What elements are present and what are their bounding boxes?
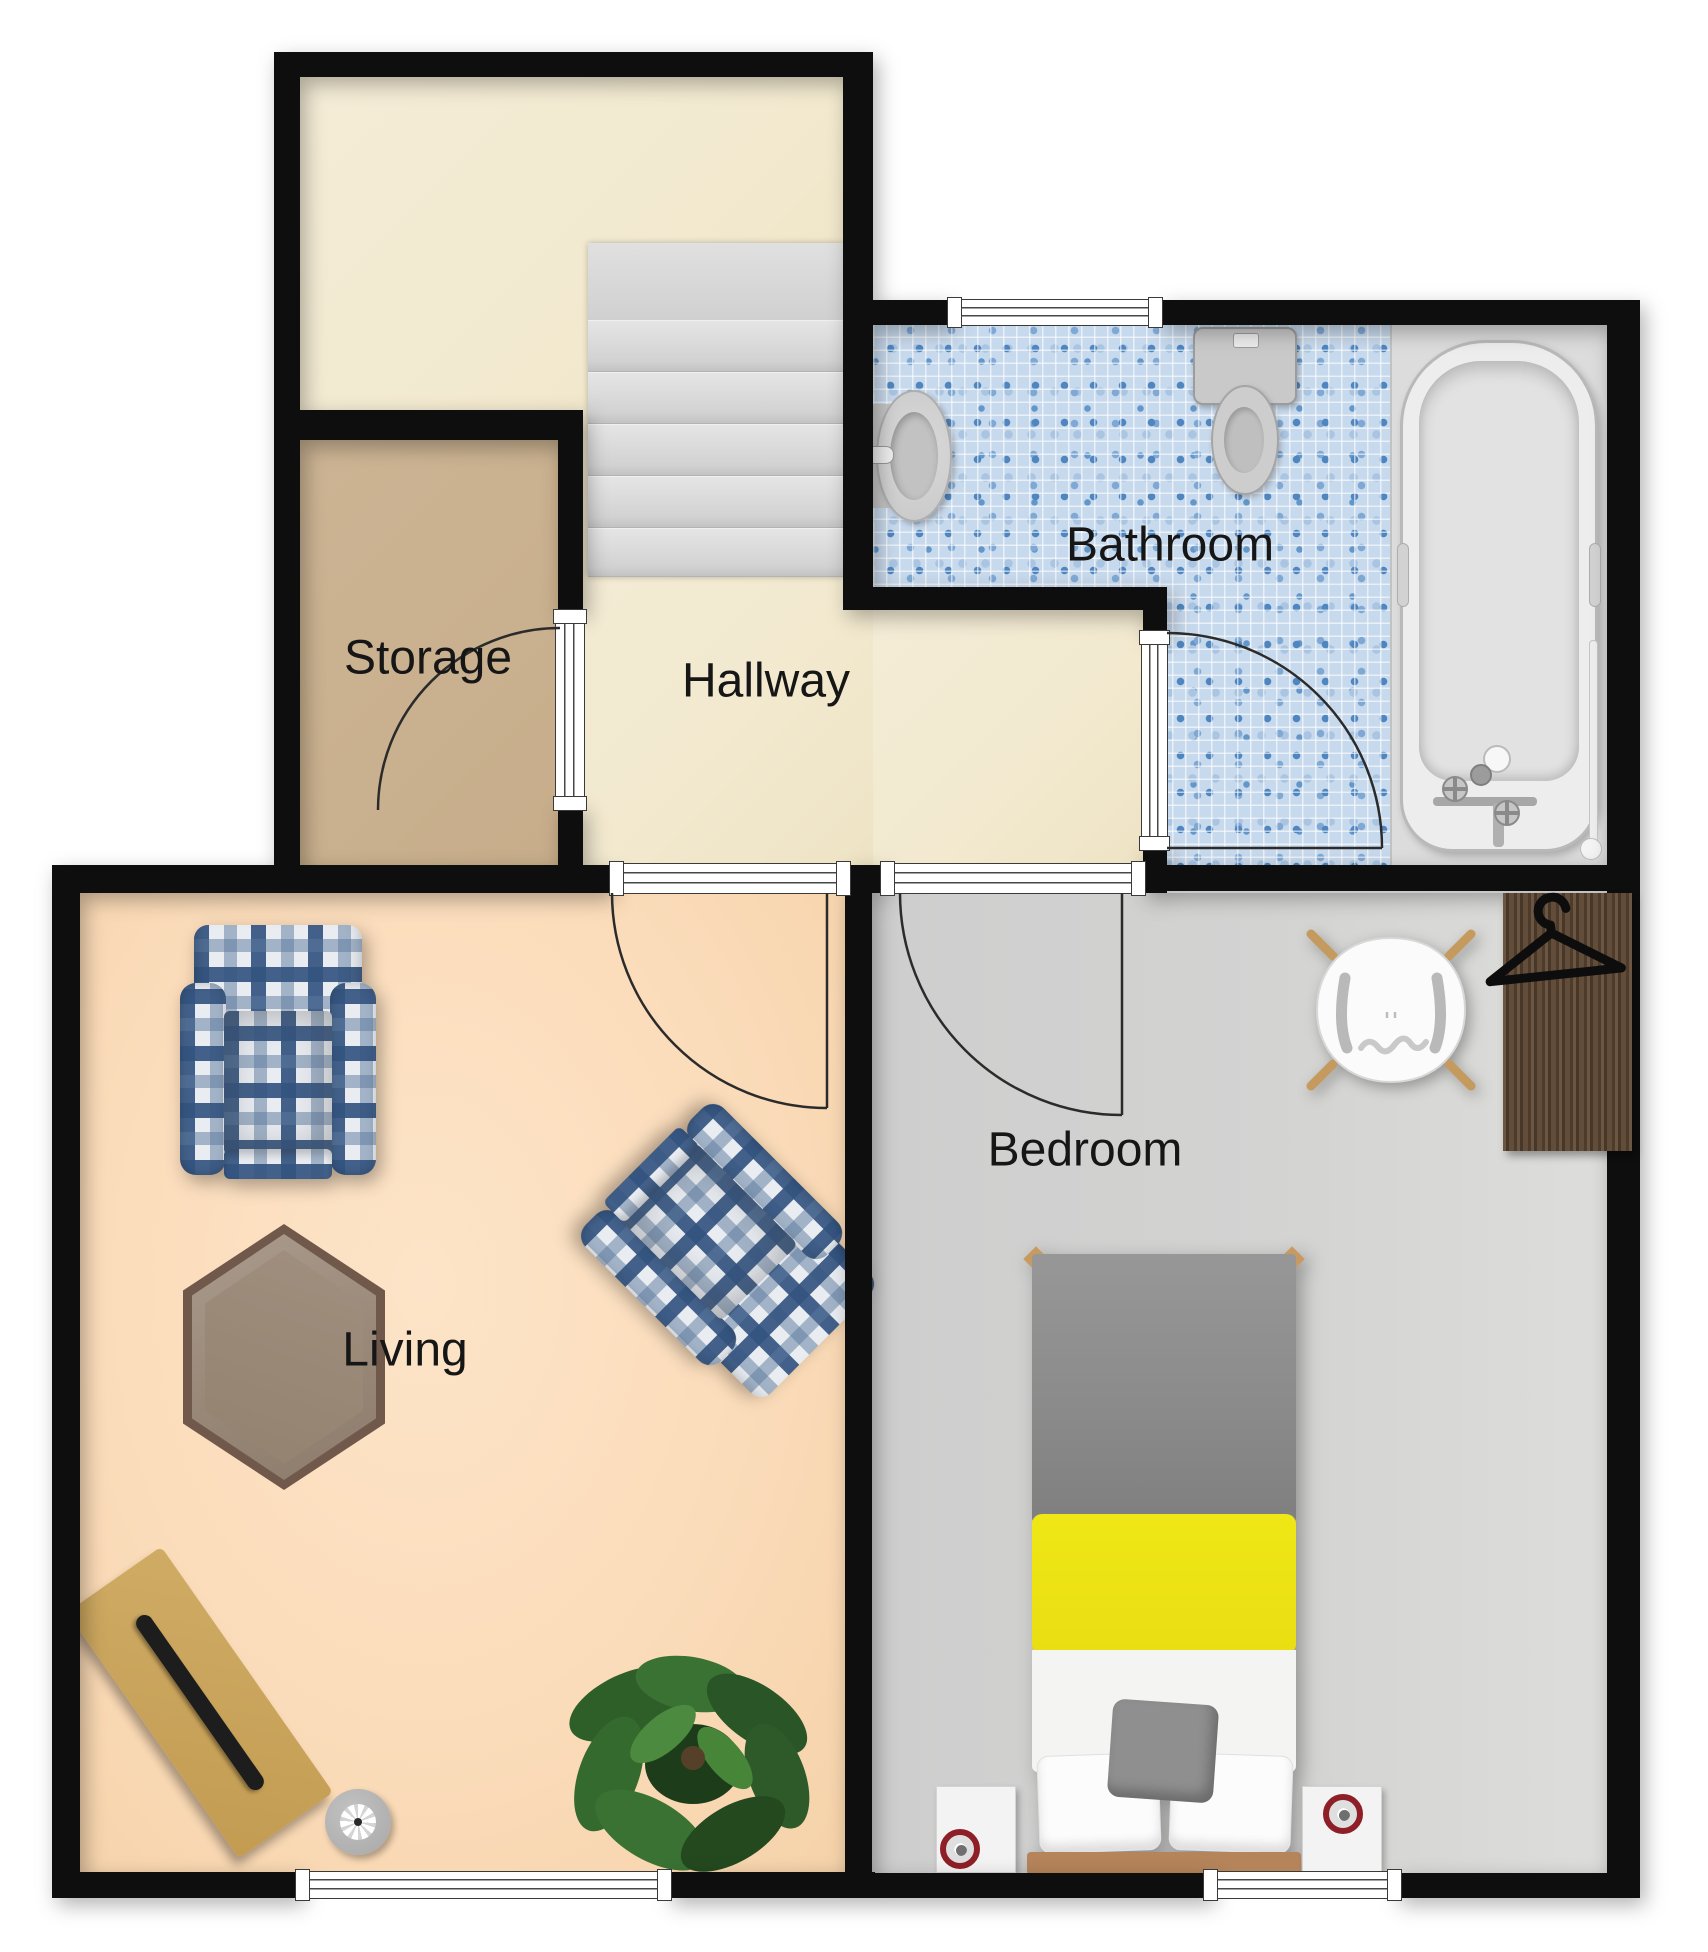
living-door-arc bbox=[612, 893, 827, 1108]
floor-plan: Storage Hallway Bathroom Living Bedroom bbox=[0, 0, 1708, 1952]
room-label-living: Living bbox=[342, 1323, 467, 1378]
door-swing-arcs bbox=[0, 0, 1708, 1952]
room-label-bedroom: Bedroom bbox=[988, 1123, 1183, 1178]
bathroom-door-arc bbox=[1167, 633, 1382, 848]
room-label-hallway: Hallway bbox=[682, 654, 850, 709]
room-label-storage: Storage bbox=[344, 631, 512, 686]
room-label-bathroom: Bathroom bbox=[1066, 518, 1274, 573]
bedroom-door-arc bbox=[900, 893, 1122, 1115]
